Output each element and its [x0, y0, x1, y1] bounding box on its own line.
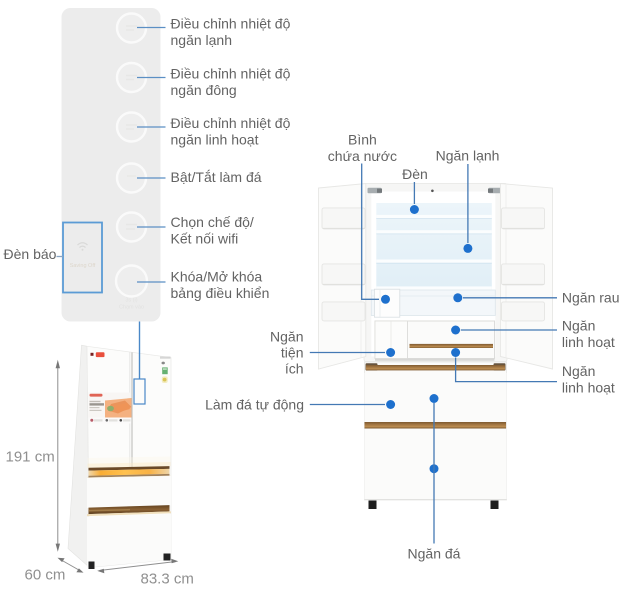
svg-text:Khóa/Mở khóabảng điều khiển: Khóa/Mở khóabảng điều khiển: [171, 268, 270, 301]
svg-text:3s (i): 3s (i): [125, 298, 137, 304]
svg-text:Ngăn đá: Ngăn đá: [408, 545, 461, 561]
svg-text:Đèn: Đèn: [402, 166, 428, 182]
svg-text:Bật/Tắt làm đá: Bật/Tắt làm đá: [171, 169, 262, 185]
svg-text:Saving Off: Saving Off: [70, 263, 96, 269]
svg-text:Ngăn rau: Ngăn rau: [562, 289, 620, 305]
svg-text:Ngăn lạnh: Ngăn lạnh: [436, 148, 500, 164]
svg-text:60 cm: 60 cm: [25, 567, 66, 584]
svg-text:83.3 cm: 83.3 cm: [141, 571, 194, 588]
svg-text:Đèn báo: Đèn báo: [4, 246, 57, 262]
svg-text:Làm đá tự động: Làm đá tự động: [205, 396, 304, 412]
svg-text:Chạm vào: Chạm vào: [119, 305, 144, 311]
svg-text:191 cm: 191 cm: [6, 449, 55, 466]
